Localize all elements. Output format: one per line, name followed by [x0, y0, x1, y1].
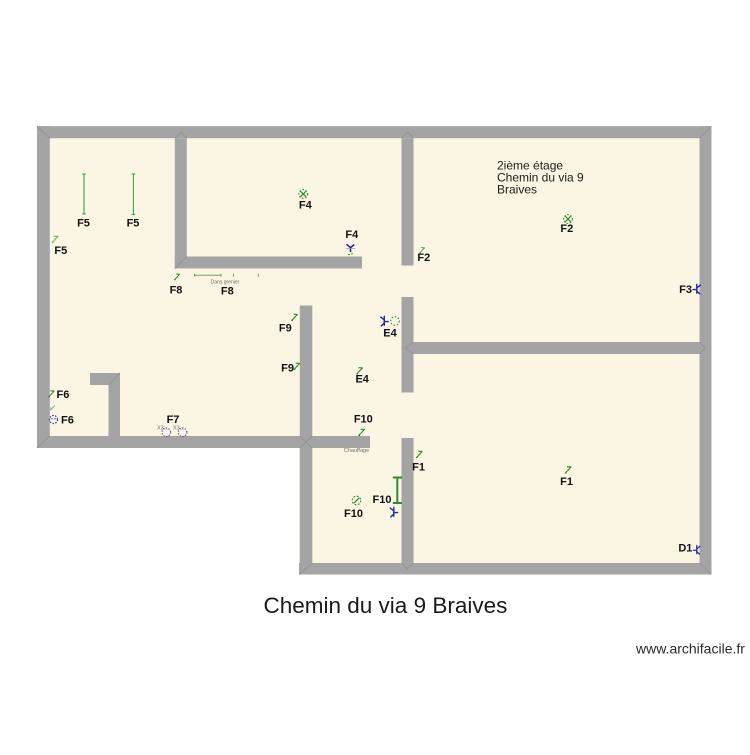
svg-text:F7: F7 [167, 414, 180, 426]
svg-text:F8: F8 [170, 285, 183, 297]
svg-text:F9: F9 [279, 323, 292, 335]
svg-text:F2: F2 [560, 223, 573, 235]
svg-text:D1: D1 [678, 543, 692, 555]
svg-text:E4: E4 [383, 328, 397, 340]
svg-text:F6: F6 [57, 389, 70, 401]
svg-text:E4: E4 [355, 374, 369, 386]
svg-text:F1: F1 [412, 462, 425, 474]
svg-text:F6: F6 [61, 415, 74, 427]
svg-text:F10: F10 [344, 508, 363, 520]
svg-text:F5: F5 [127, 218, 140, 230]
svg-text:Braives: Braives [497, 183, 537, 197]
svg-text:F9: F9 [281, 363, 294, 375]
svg-text:F10: F10 [354, 414, 373, 426]
svg-text:F5: F5 [54, 245, 67, 257]
svg-text:F4: F4 [299, 200, 313, 212]
svg-text:F4: F4 [345, 229, 359, 241]
svg-text:Chemin du via 9 Braives: Chemin du via 9 Braives [264, 593, 508, 618]
svg-text:F3: F3 [679, 284, 692, 296]
svg-text:F10: F10 [373, 494, 392, 506]
svg-text:Chauffage: Chauffage [344, 448, 369, 454]
svg-text:www.archifacile.fr: www.archifacile.fr [635, 641, 745, 657]
svg-text:F2: F2 [417, 252, 430, 264]
svg-text:F5: F5 [77, 218, 90, 230]
svg-text:F1: F1 [560, 476, 573, 488]
svg-text:F8: F8 [221, 286, 234, 298]
